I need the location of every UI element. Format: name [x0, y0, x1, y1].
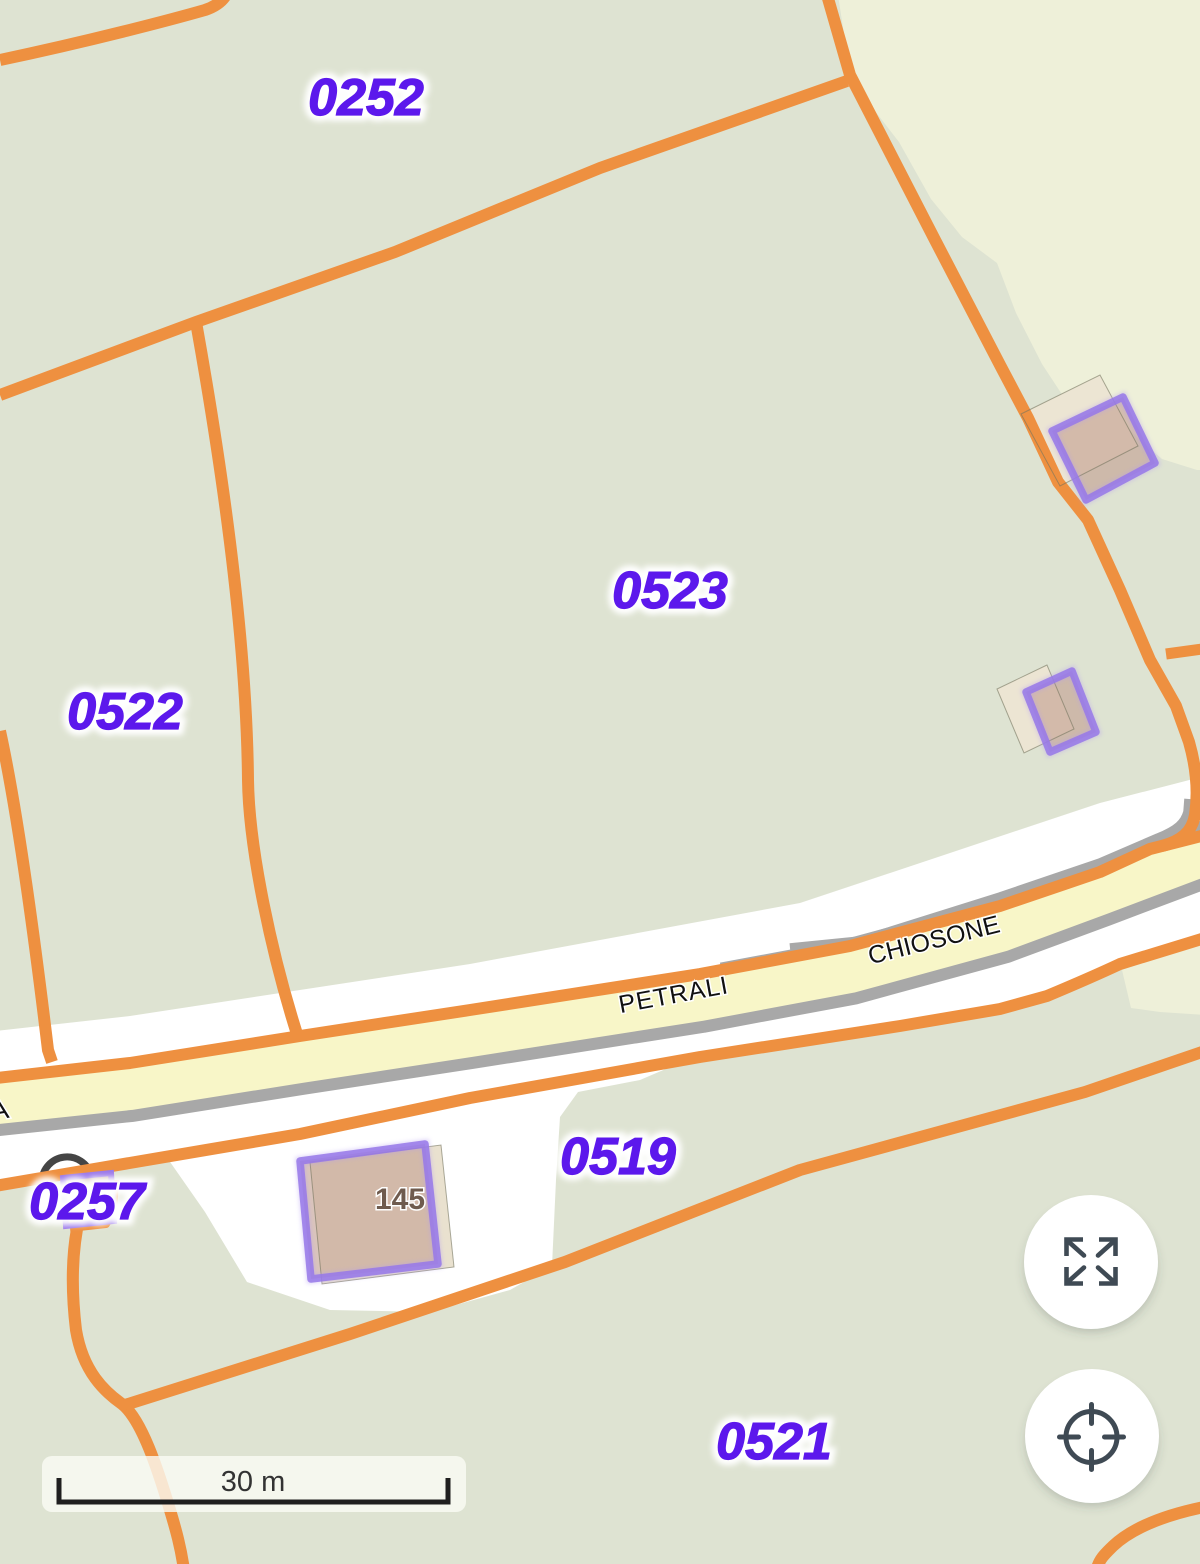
- svg-text:0257: 0257: [29, 1173, 147, 1231]
- svg-text:0523: 0523: [612, 562, 728, 620]
- svg-text:0252: 0252: [308, 69, 424, 127]
- svg-text:0521: 0521: [716, 1413, 832, 1471]
- svg-text:30 m: 30 m: [221, 1466, 285, 1498]
- svg-text:0522: 0522: [67, 683, 183, 741]
- svg-text:0519: 0519: [560, 1128, 676, 1186]
- svg-text:145: 145: [375, 1183, 425, 1216]
